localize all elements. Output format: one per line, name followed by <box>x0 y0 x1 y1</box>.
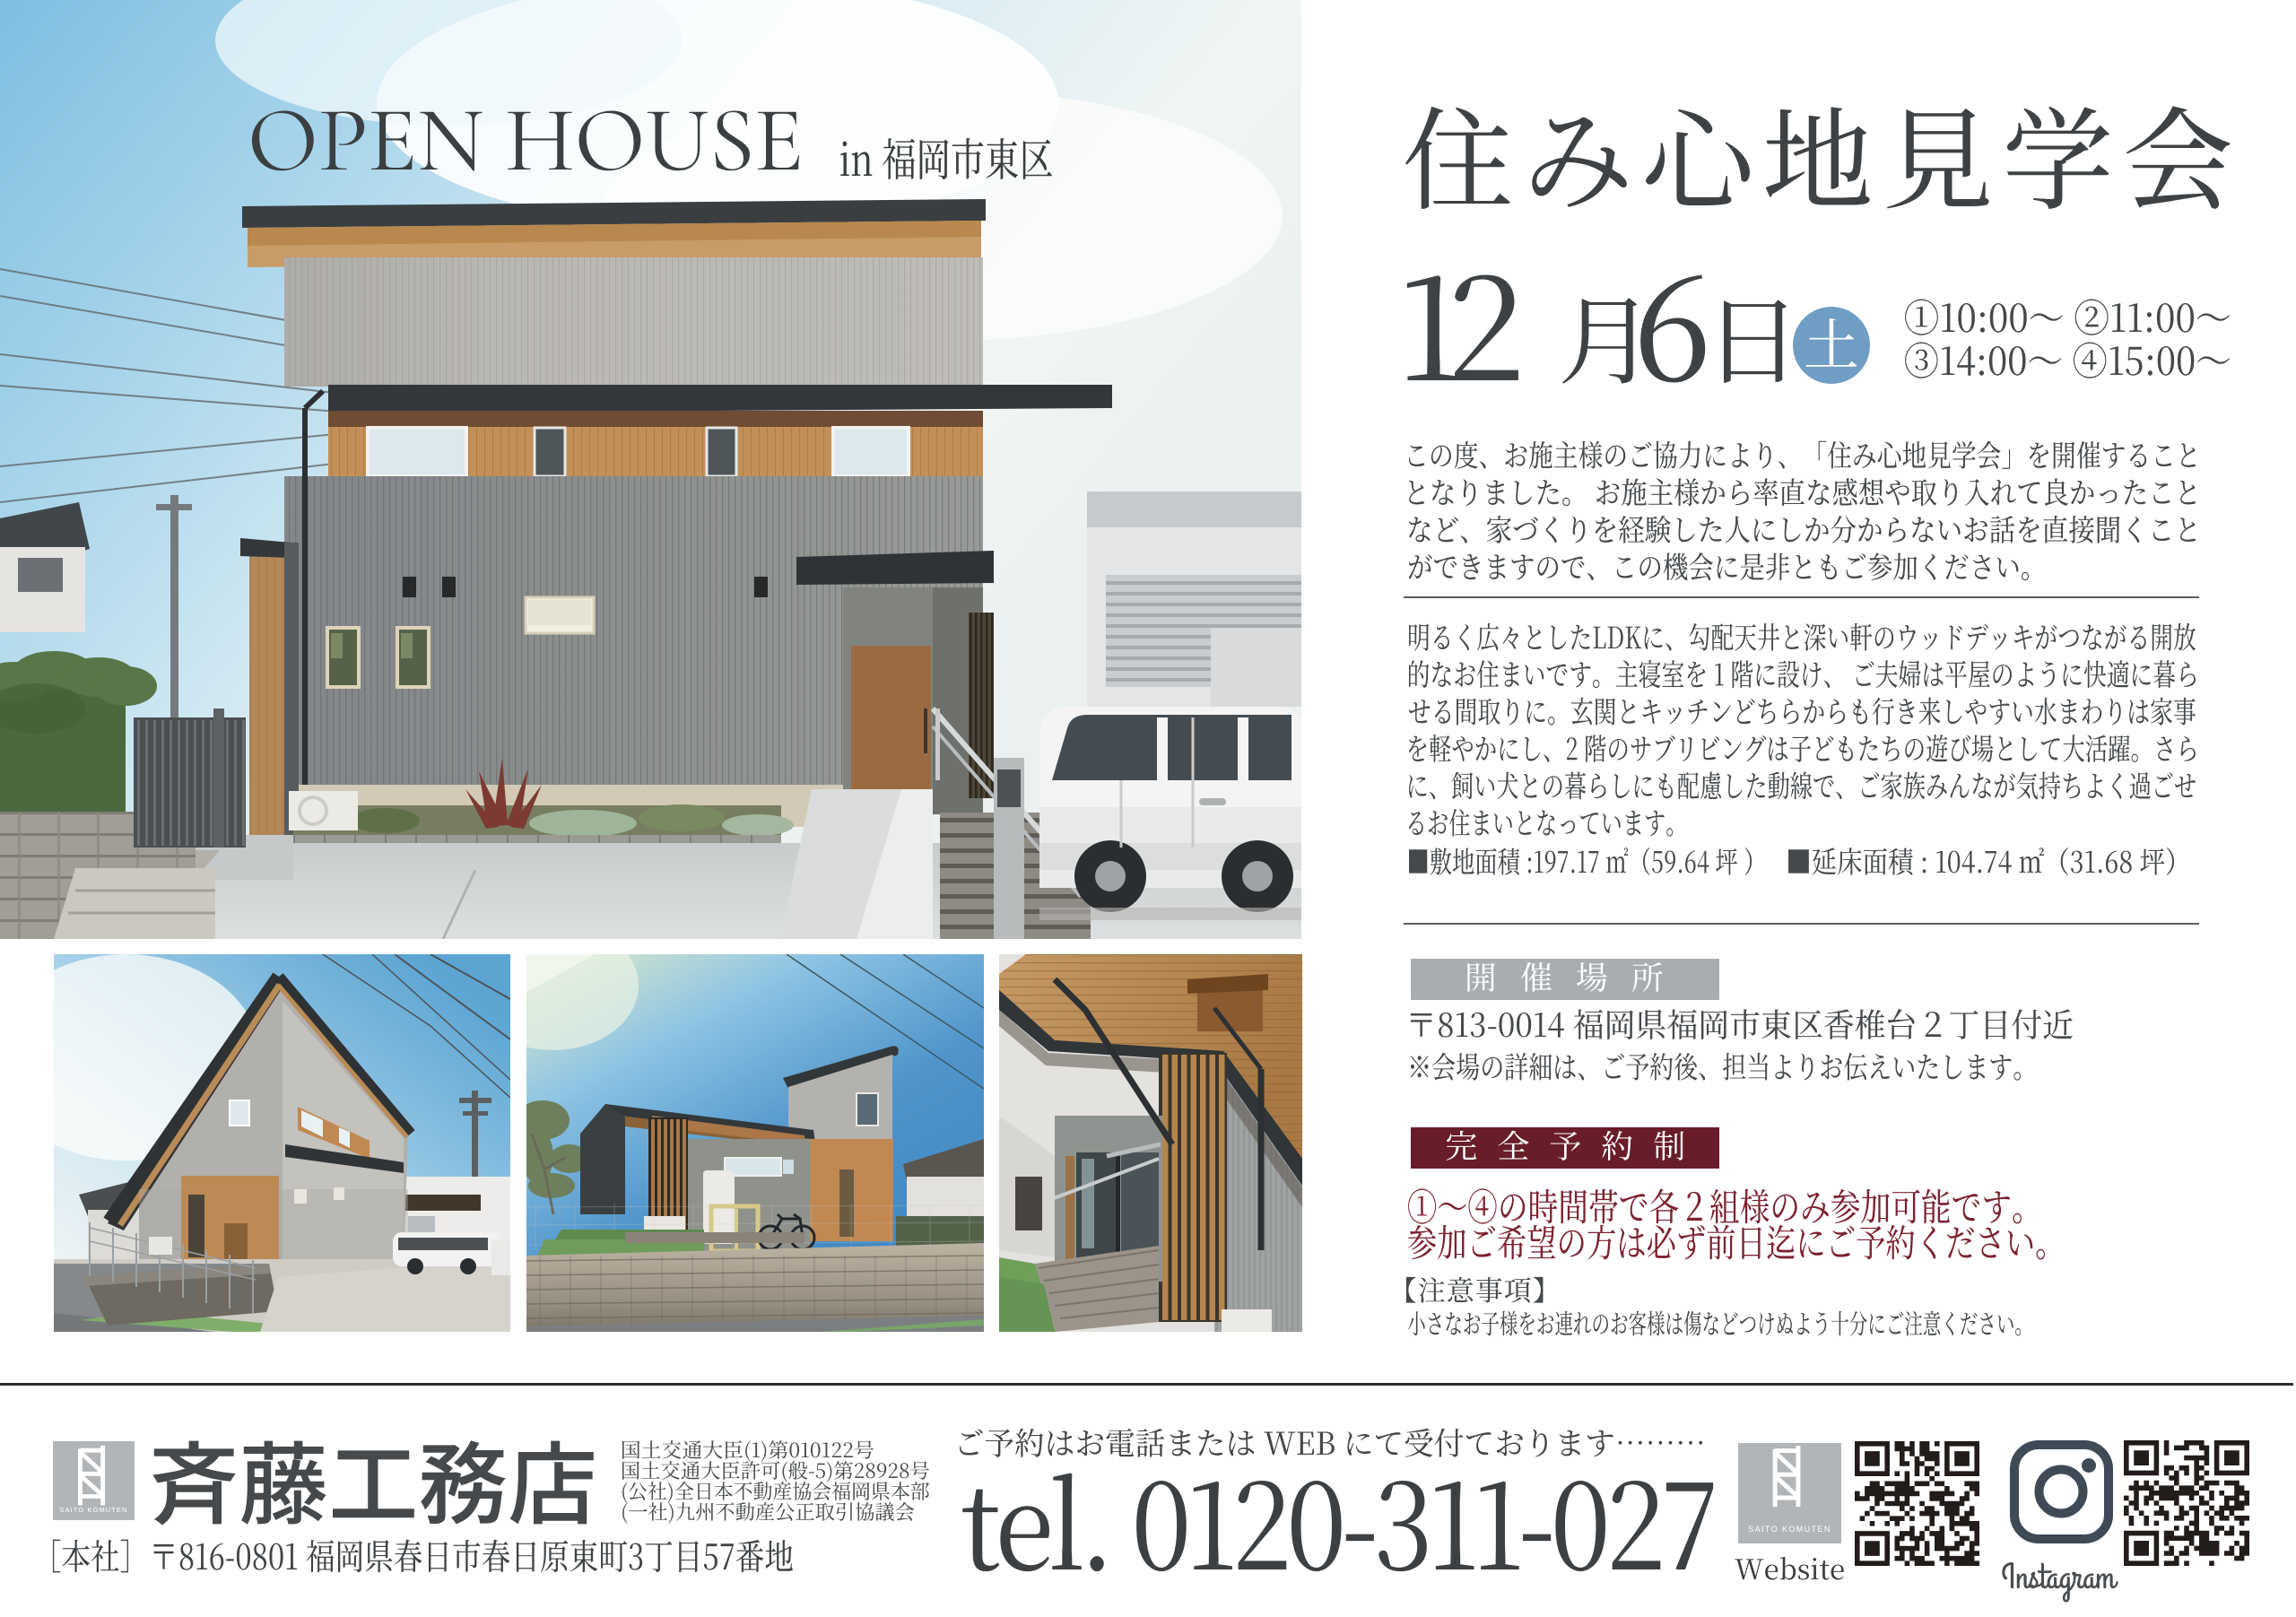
svg-text:SAITO KOMUTEN: SAITO KOMUTEN <box>59 1506 127 1514</box>
svg-text:SAITO KOMUTEN: SAITO KOMUTEN <box>1748 1525 1831 1534</box>
